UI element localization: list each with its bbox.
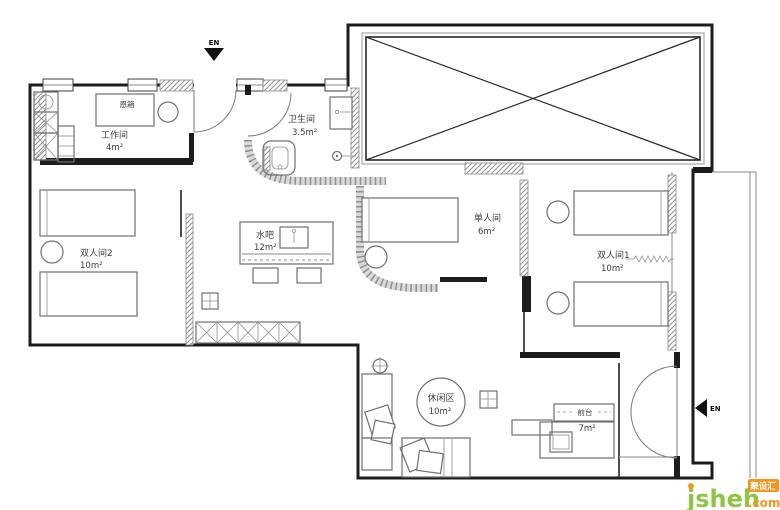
down-arrow-icon (204, 48, 224, 61)
room-double-2: 双人间2 10m² (40, 190, 137, 316)
shelf-cabinet (58, 126, 74, 162)
entry-arrow-right: EN (695, 399, 721, 417)
room-area: 12m² (254, 243, 277, 253)
entry-door (194, 90, 236, 132)
room-area: 10m² (429, 407, 452, 417)
room-leisure: 休闲区 10m² (362, 357, 497, 477)
bed (40, 272, 137, 316)
bed (362, 198, 458, 242)
entry-door-opening (194, 81, 236, 89)
room-name: 水吧 (256, 229, 274, 241)
logo-j-dot (688, 483, 694, 489)
bathroom-door (248, 93, 291, 136)
grid-table (202, 293, 218, 309)
room-name: 工作间 (101, 129, 128, 141)
radiator-symbol (626, 256, 674, 262)
cushion (371, 420, 395, 444)
bed (40, 190, 135, 236)
window (128, 79, 157, 91)
entry-label-right: EN (710, 405, 721, 413)
room-area: 3.5m² (292, 128, 317, 138)
room-name: 双人间1 (597, 249, 630, 261)
box-label: 恩箱 (120, 99, 135, 109)
desk-return (540, 422, 614, 458)
window (43, 79, 73, 91)
room-name: 休闲区 (427, 392, 454, 404)
room-name: 单人间 (474, 212, 501, 224)
room-workroom: 恩箱 工作间 4m² (34, 92, 178, 162)
room-name: 双人间2 (80, 247, 113, 259)
floor-plan-svg: 恩箱 工作间 4m² 卫生间 3.5m² 双人间2 10m² (0, 0, 780, 510)
roof-hall (351, 33, 704, 174)
room-bathroom: 卫生间 3.5m² (263, 97, 356, 175)
window (325, 79, 347, 91)
room-area: 10m² (601, 264, 624, 274)
room-area: 6m² (478, 227, 495, 237)
bed (574, 282, 668, 326)
room-single: 单人间 6m² (362, 198, 501, 268)
work-desk (96, 94, 154, 126)
room-name: 卫生间 (288, 113, 315, 125)
entrance-double-door (631, 366, 677, 458)
outer-boundary-line (712, 172, 756, 478)
logo: jsheh 聚设汇 .com (686, 479, 780, 510)
left-arrow-icon (695, 399, 707, 417)
nightstand (365, 246, 387, 268)
stool (253, 268, 278, 283)
nightstand (41, 241, 63, 263)
room-area: 10m² (80, 261, 103, 271)
wall-hatch-top-2 (263, 80, 287, 91)
cushion (417, 450, 444, 473)
room-area: 4m² (106, 143, 123, 153)
stool (297, 268, 321, 283)
nightstand (547, 292, 569, 314)
toilet (263, 141, 295, 175)
room-name: 前台 (578, 407, 593, 417)
floor-plan-image: 恩箱 工作间 4m² 卫生间 3.5m² 双人间2 10m² (0, 0, 780, 510)
cabinet-row (196, 293, 300, 343)
ceiling-light-icon (371, 357, 389, 375)
entry-label-top: EN (209, 39, 220, 47)
wall-hatch-below-hall (465, 163, 523, 174)
room-front-desk: 前台 7m² (512, 404, 614, 458)
wash-basin (330, 97, 352, 129)
logo-badge-text: 聚设汇 (749, 481, 776, 492)
bed (574, 191, 668, 235)
room-area: 7m² (578, 424, 595, 434)
wall-hatch-top-1 (160, 80, 193, 91)
logo-tld-text: .com (748, 496, 780, 510)
room-double-1: 双人间1 10m² (547, 191, 674, 326)
grid-table (480, 391, 497, 408)
chair (158, 102, 178, 122)
nightstand (547, 201, 569, 223)
room-water-bar: 水吧 12m² (240, 222, 333, 283)
entry-arrow-top: EN (204, 39, 224, 61)
